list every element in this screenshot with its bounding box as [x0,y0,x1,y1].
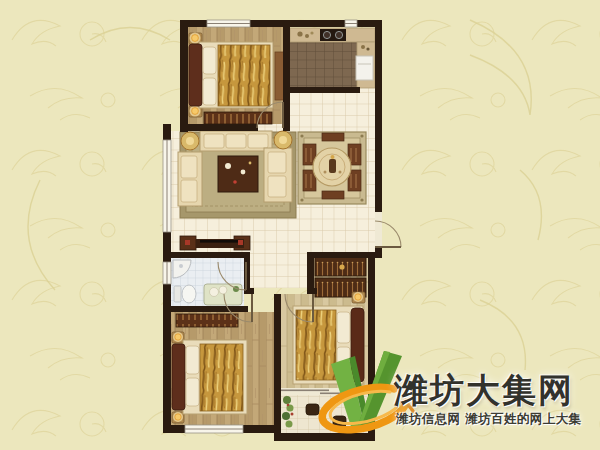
lamp [175,334,181,340]
dresser [176,314,238,327]
pillow [203,78,216,105]
lamp [355,294,361,300]
lamp [192,108,199,115]
toilet-tank [174,286,181,302]
candelabra [329,159,336,173]
bed-headboard [172,344,185,410]
plant [283,396,291,404]
coffee-table [218,156,258,192]
room-dining [298,132,366,204]
bed-duvet [200,344,243,411]
plant [282,412,290,420]
towel [210,288,219,297]
dining-bench [322,133,344,141]
entry-threshold [375,212,382,247]
burner [323,31,330,38]
watermark-title: 潍坊大集网 [394,368,594,414]
lamp [192,35,199,42]
pillow [337,312,350,343]
screenshot-stage: 潍坊大集网 潍坊信息网 潍坊百姓的网上大集 [0,0,600,450]
lamp [175,414,181,420]
tv [200,240,240,243]
bed-duvet [218,45,270,106]
pillow [186,378,199,406]
toilet [182,285,196,303]
floor-hall [290,93,375,131]
desk [275,52,284,100]
plant [286,421,293,428]
fridge [356,56,373,80]
dining-bench [322,191,344,199]
watermark-subtitle: 潍坊信息网 潍坊百姓的网上大集 [396,411,581,428]
bed-duvet [296,310,336,380]
pillow [203,47,216,74]
bed-headboard [189,44,202,106]
towel [219,286,227,294]
stool [306,404,319,415]
burner [335,31,342,38]
pillow [186,346,199,374]
floor-corridor [250,252,307,288]
